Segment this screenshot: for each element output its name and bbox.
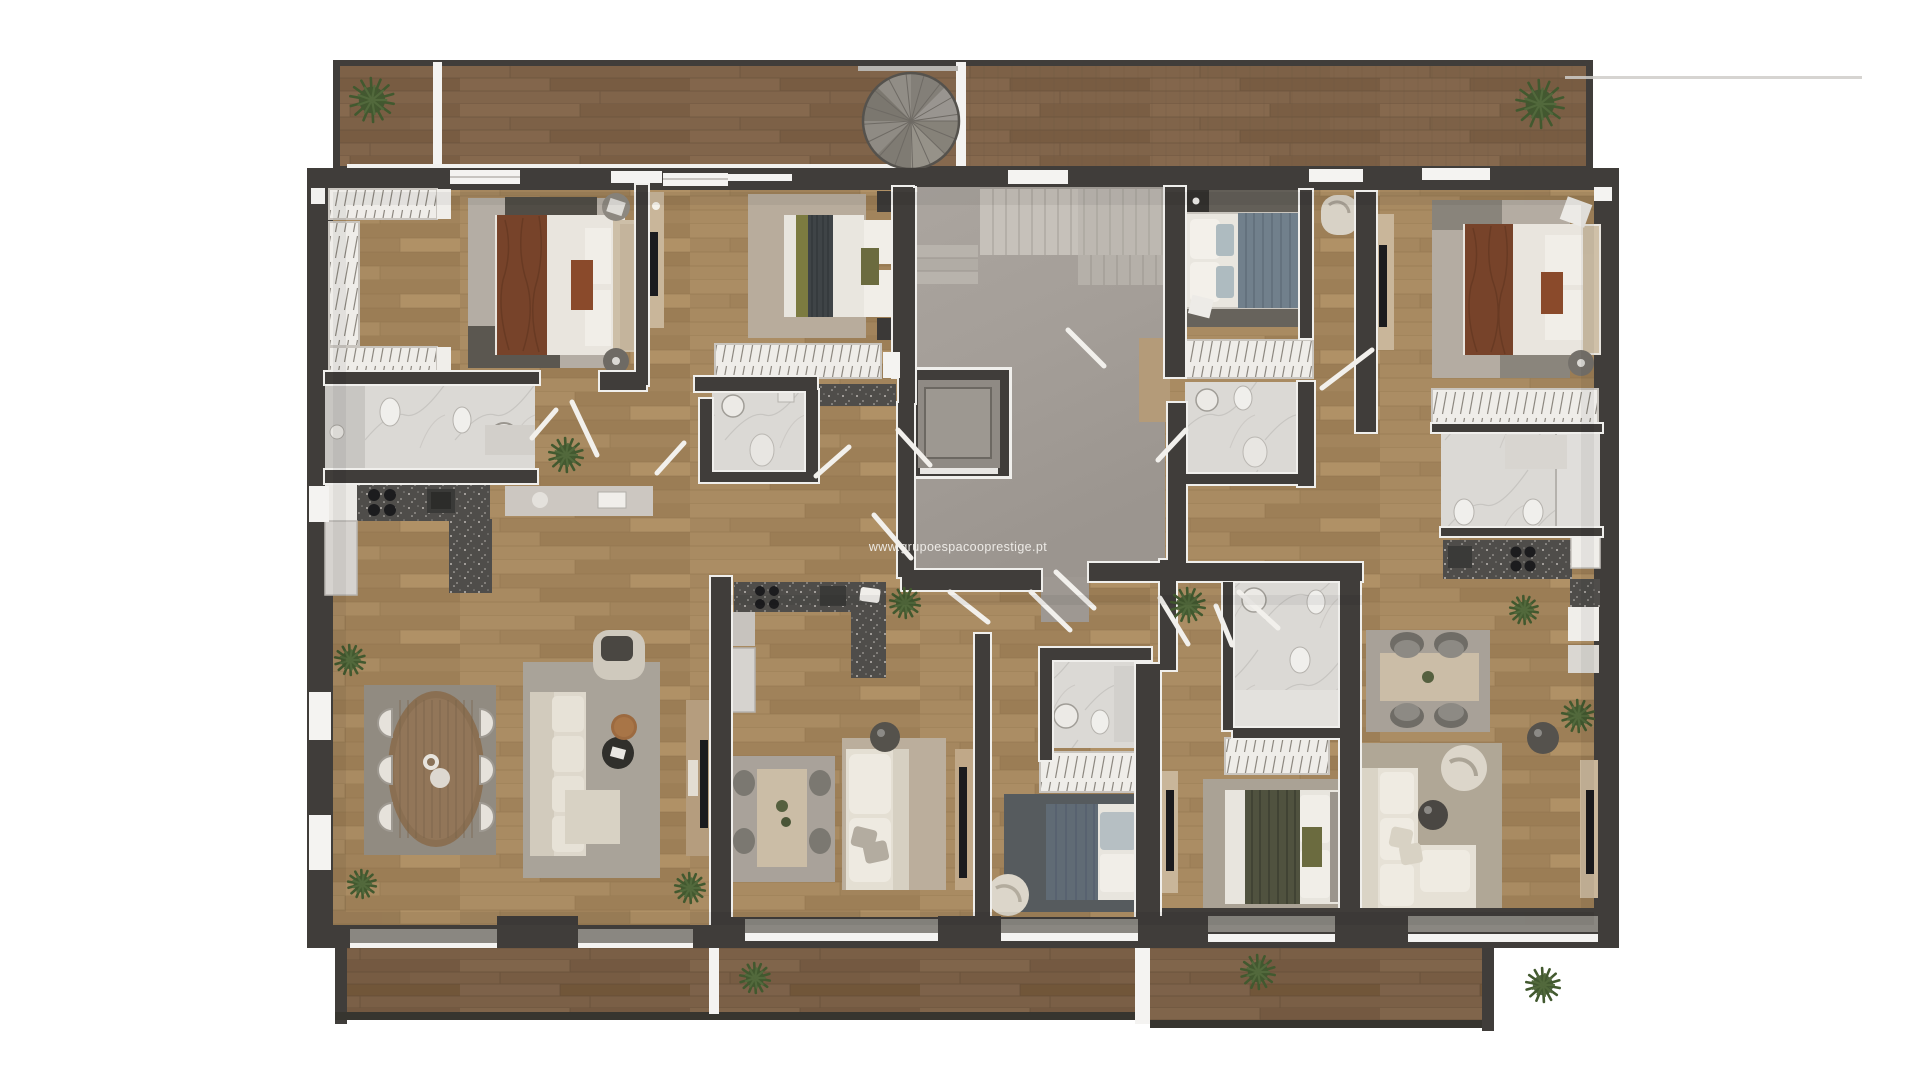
svg-text:www.grupoespacooprestige.pt: www.grupoespacooprestige.pt <box>868 540 1047 554</box>
